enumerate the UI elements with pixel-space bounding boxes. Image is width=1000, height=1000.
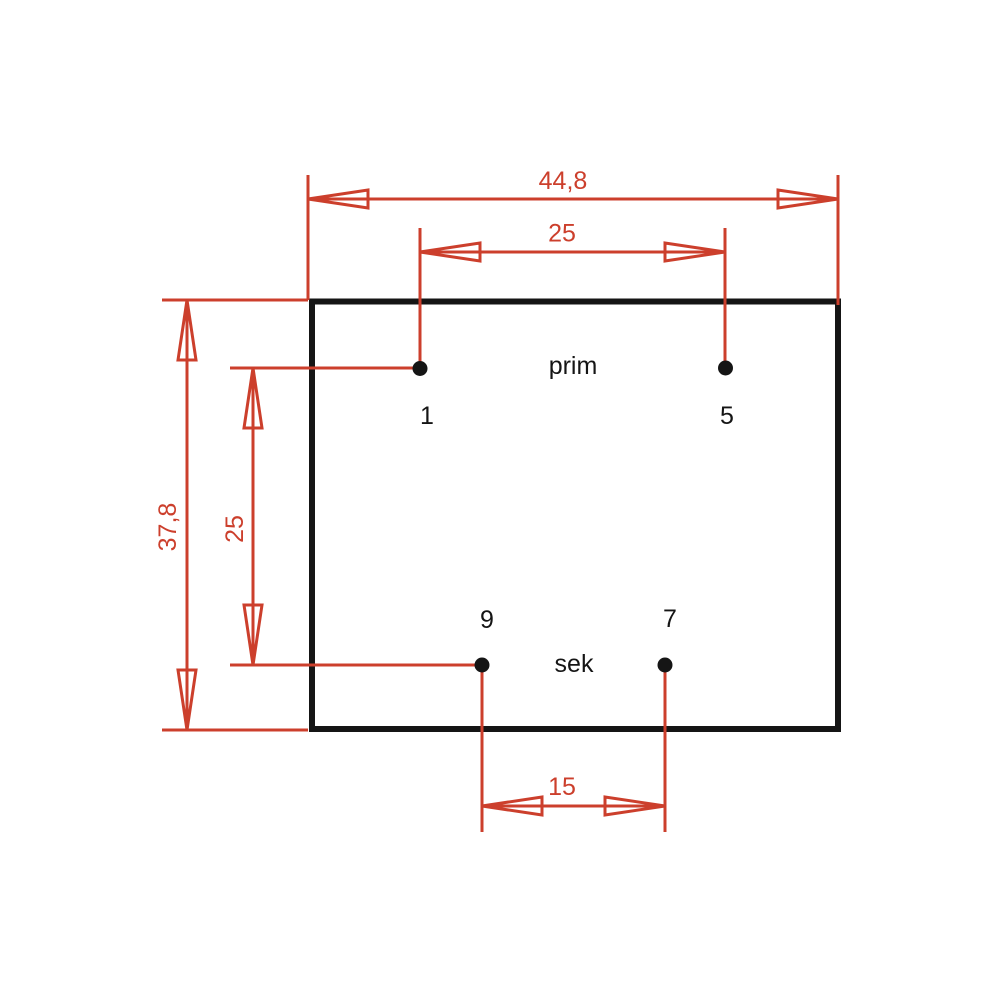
- svg-text:25: 25: [221, 515, 249, 543]
- svg-text:5: 5: [720, 402, 734, 430]
- svg-text:sek: sek: [555, 650, 594, 678]
- svg-text:prim: prim: [549, 352, 598, 380]
- svg-text:44,8: 44,8: [539, 167, 588, 195]
- svg-text:25: 25: [548, 220, 576, 248]
- svg-text:15: 15: [548, 773, 576, 801]
- svg-text:7: 7: [663, 605, 677, 633]
- svg-text:1: 1: [420, 402, 434, 430]
- svg-text:37,8: 37,8: [154, 503, 182, 552]
- svg-text:9: 9: [480, 606, 494, 634]
